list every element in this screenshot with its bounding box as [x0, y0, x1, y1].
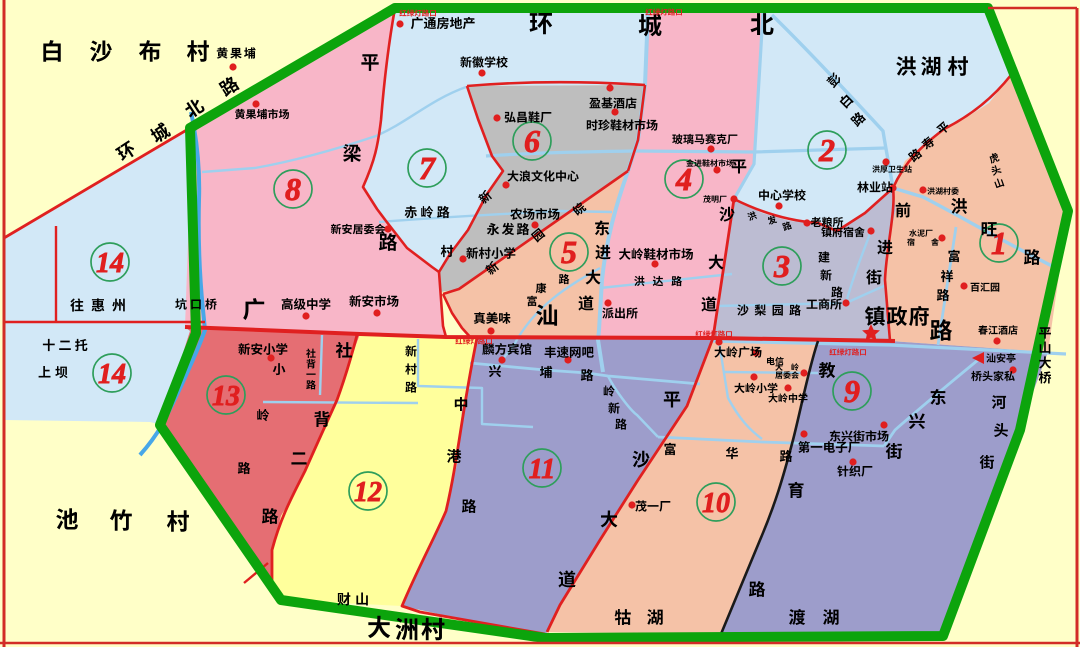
svg-text:4: 4: [675, 161, 692, 197]
svg-text:14: 14: [98, 359, 126, 390]
svg-text:7: 7: [419, 150, 437, 186]
svg-text:9: 9: [844, 373, 860, 409]
svg-text:8: 8: [285, 171, 301, 207]
svg-text:11: 11: [529, 454, 555, 485]
svg-text:3: 3: [773, 248, 790, 284]
svg-text:14: 14: [96, 248, 124, 279]
svg-text:10: 10: [702, 488, 730, 519]
svg-text:6: 6: [524, 123, 540, 159]
svg-text:5: 5: [561, 234, 577, 270]
svg-text:13: 13: [212, 381, 240, 412]
svg-text:2: 2: [818, 132, 835, 168]
svg-text:12: 12: [354, 477, 382, 508]
svg-text:1: 1: [991, 225, 1007, 261]
